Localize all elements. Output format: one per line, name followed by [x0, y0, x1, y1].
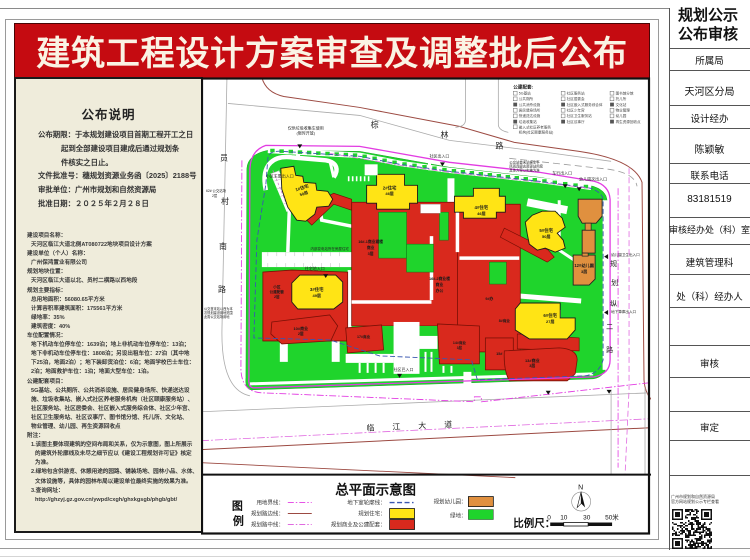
- svg-text:27层: 27层: [546, 318, 554, 324]
- svg-text:路: 路: [218, 284, 226, 294]
- svg-text:商业: 商业: [367, 245, 375, 250]
- svg-text:划: 划: [611, 278, 618, 287]
- svg-text:绿地：: 绿地：: [450, 512, 466, 520]
- svg-text:15#: 15#: [496, 352, 503, 356]
- svg-text:再生资源回收点: 再生资源回收点: [616, 119, 641, 124]
- svg-text:社区少年宫: 社区少年宫: [567, 108, 585, 113]
- svg-text:13#商业: 13#商业: [525, 357, 540, 363]
- svg-text:49层: 49层: [313, 292, 321, 298]
- svg-text:物业管理: 物业管理: [616, 108, 631, 113]
- svg-text:8#商业: 8#商业: [499, 318, 511, 323]
- svg-text:办公: 办公: [436, 288, 444, 293]
- svg-text:规: 规: [610, 259, 617, 268]
- svg-text:公建配套: 公建配套: [270, 289, 285, 294]
- svg-text:图书馆分馆: 图书馆分馆: [616, 90, 634, 95]
- svg-text:4#住宅: 4#住宅: [475, 204, 489, 211]
- svg-text:用地界线：: 用地界线：: [256, 499, 283, 507]
- svg-text:二: 二: [606, 324, 613, 331]
- svg-text:幼儿园: 幼儿园: [616, 113, 627, 118]
- svg-text:5#住宅: 5#住宅: [539, 227, 553, 234]
- svg-text:社区出入口: 社区出入口: [430, 152, 450, 158]
- svg-text:46层: 46层: [385, 190, 393, 196]
- svg-text:9#办: 9#办: [485, 296, 493, 301]
- svg-text:居民健身场所: 居民健身场所: [519, 108, 541, 113]
- svg-text:例: 例: [233, 514, 244, 528]
- svg-text:机构(社区颐康服务站): 机构(社区颐康服务站): [519, 129, 554, 134]
- svg-text:规划路边线：: 规划路边线：: [251, 510, 284, 518]
- svg-text:14#商业: 14#商业: [453, 340, 467, 345]
- svg-text:图: 图: [232, 500, 243, 513]
- svg-text:内部变电站所在房屋住宅: 内部变电站所在房屋住宅: [311, 246, 350, 251]
- svg-text:30: 30: [583, 515, 591, 522]
- svg-text:住宅地入口: 住宅地入口: [305, 265, 325, 271]
- svg-text:规划路中线：: 规划路中线：: [251, 521, 284, 529]
- svg-text:2层: 2层: [298, 331, 304, 336]
- svg-text:小区: 小区: [272, 284, 281, 289]
- svg-text:规划住宅：: 规划住宅：: [358, 510, 385, 518]
- svg-text:路: 路: [495, 140, 503, 150]
- svg-text:50层: 50层: [542, 233, 550, 239]
- svg-text:地下室轮廓线：: 地下室轮廓线：: [347, 499, 385, 507]
- svg-text:16#-1商业裙楼: 16#-1商业裙楼: [358, 239, 383, 244]
- svg-text:3层: 3层: [581, 268, 587, 274]
- svg-text:N: N: [578, 485, 583, 492]
- svg-text:12#幼儿園: 12#幼儿園: [574, 262, 594, 269]
- svg-text:总平面示意图: 总平面示意图: [335, 482, 416, 498]
- svg-text:0: 0: [547, 515, 551, 522]
- svg-text:此需公交站场用地: 此需公交站场用地: [204, 314, 230, 319]
- svg-text:50米: 50米: [605, 513, 619, 522]
- svg-text:文化站: 文化站: [616, 102, 627, 107]
- svg-text:商业: 商业: [436, 282, 444, 287]
- svg-text:棕: 棕: [371, 119, 379, 129]
- svg-text:公共厕所: 公共厕所: [519, 96, 534, 101]
- svg-text:5G基站: 5G基站: [519, 90, 531, 95]
- svg-text:46层: 46层: [477, 210, 485, 216]
- svg-text:具体方案以实施为准: 具体方案以实施为准: [509, 167, 540, 172]
- svg-text:6#住宅: 6#住宅: [543, 312, 557, 319]
- svg-text:快递送达设施: 快递送达设施: [519, 113, 541, 118]
- svg-text:小区主要出入口: 小区主要出入口: [266, 172, 294, 178]
- svg-text:社区议事厅: 社区议事厅: [567, 119, 585, 124]
- svg-text:社区嵌入式服务综合体: 社区嵌入式服务综合体: [567, 102, 603, 107]
- svg-text:3层: 3层: [368, 251, 374, 256]
- svg-text:3#住宅: 3#住宅: [310, 286, 324, 293]
- svg-text:社区卫生服务站: 社区卫生服务站: [567, 113, 592, 118]
- svg-text:托儿所: 托儿所: [616, 96, 627, 101]
- svg-text:林: 林: [440, 129, 448, 139]
- svg-text:嵌入式社区养老服务: 嵌入式社区养老服务: [519, 124, 552, 129]
- svg-text:社区居委会: 社区居委会: [567, 96, 585, 101]
- svg-text:公建配套:: 公建配套:: [513, 83, 533, 90]
- svg-text:社区巴入口: 社区巴入口: [394, 366, 414, 372]
- svg-text:村: 村: [221, 196, 229, 206]
- svg-text:规划幼儿园：: 规划幼儿园：: [434, 498, 467, 506]
- svg-text:3层: 3层: [529, 363, 535, 368]
- svg-text:62# 公交站场: 62# 公交站场: [206, 188, 227, 193]
- svg-text:地下車庫出入口: 地下車庫出入口: [611, 309, 636, 314]
- svg-text:南: 南: [219, 241, 227, 251]
- svg-text:纵: 纵: [610, 300, 617, 308]
- svg-text:17#商业: 17#商业: [357, 334, 371, 339]
- svg-text:规划商业及公建配套：: 规划商业及公建配套：: [331, 521, 386, 529]
- svg-text:车行出入口: 车行出入口: [552, 169, 572, 175]
- svg-text:(限时开放): (限时开放): [296, 129, 315, 135]
- svg-text:2层: 2层: [274, 294, 280, 299]
- svg-text:公共消杀设施: 公共消杀设施: [519, 102, 541, 107]
- svg-text:2#住宅: 2#住宅: [383, 184, 397, 191]
- svg-text:10: 10: [560, 515, 568, 522]
- svg-text:员: 员: [220, 153, 228, 162]
- svg-text:幼儿園次出入口: 幼儿園次出入口: [579, 175, 607, 181]
- svg-text:幼儿園卫生出入口: 幼儿園卫生出入口: [611, 252, 640, 257]
- svg-text:3层: 3层: [457, 345, 463, 350]
- svg-text:路: 路: [606, 345, 613, 354]
- svg-text:16#-2商业楼: 16#-2商业楼: [429, 276, 450, 281]
- svg-text:2层: 2层: [212, 193, 218, 198]
- svg-text:10#商业: 10#商业: [293, 325, 308, 331]
- svg-text:社区服务站: 社区服务站: [567, 90, 585, 95]
- svg-text:垃圾收集站: 垃圾收集站: [519, 119, 537, 124]
